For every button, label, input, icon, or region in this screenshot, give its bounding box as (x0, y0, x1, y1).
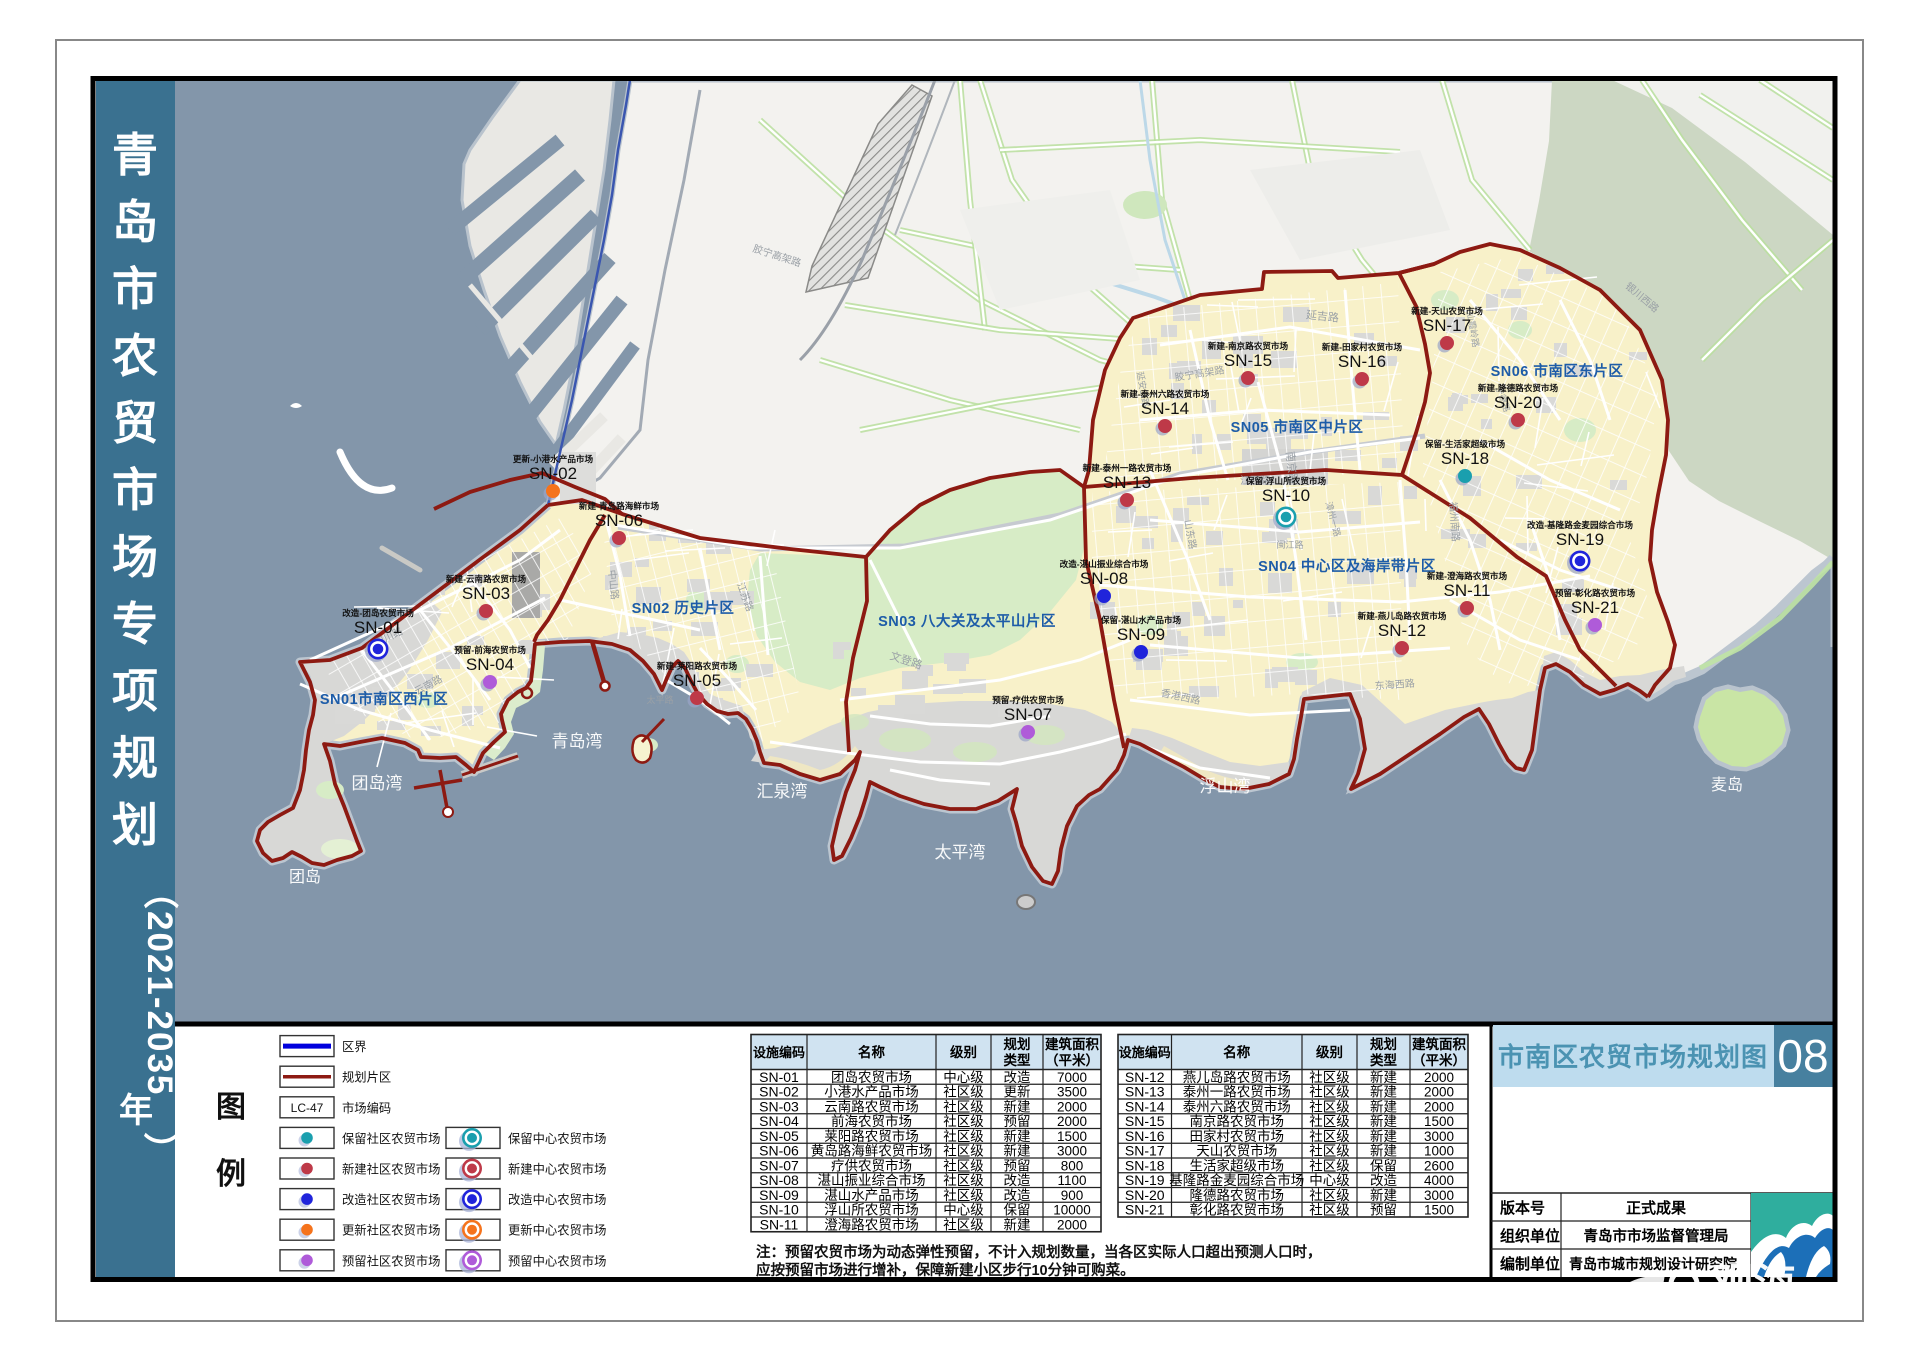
svg-text:中心级: 中心级 (1309, 1173, 1350, 1188)
svg-text:名称: 名称 (858, 1044, 886, 1060)
svg-text:SN-16: SN-16 (1125, 1128, 1165, 1144)
svg-text:麦岛: 麦岛 (1711, 776, 1743, 794)
svg-text:改造-基隆路金麦园综合市场: 改造-基隆路金麦园综合市场 (1527, 519, 1633, 530)
svg-text:泰州一路农贸市场: 泰州一路农贸市场 (1183, 1084, 1291, 1100)
svg-text:7000: 7000 (1057, 1070, 1087, 1085)
svg-text:市: 市 (112, 464, 158, 516)
svg-text:新建: 新建 (1370, 1144, 1397, 1159)
svg-text:SN-21: SN-21 (1125, 1202, 1165, 1218)
svg-text:新建: 新建 (1004, 1099, 1031, 1114)
svg-text:新建-澄海路农贸市场: 新建-澄海路农贸市场 (1427, 570, 1508, 581)
svg-text:3500: 3500 (1057, 1085, 1087, 1100)
svg-text:改造: 改造 (1004, 1173, 1032, 1188)
svg-text:新建: 新建 (1370, 1070, 1397, 1085)
svg-text:SN-10: SN-10 (759, 1202, 799, 1218)
svg-text:）: ） (140, 1132, 179, 1167)
svg-text:SN-15: SN-15 (1224, 351, 1272, 370)
svg-text:名称: 名称 (1223, 1044, 1251, 1060)
svg-text:SN-17: SN-17 (1125, 1143, 1165, 1159)
svg-text:团岛湾: 团岛湾 (352, 774, 403, 793)
svg-text:SN-12: SN-12 (1125, 1069, 1165, 1085)
svg-text:湛山水产品市场: 湛山水产品市场 (824, 1187, 919, 1203)
svg-text:新建-燕儿岛路农贸市场: 新建-燕儿岛路农贸市场 (1358, 610, 1447, 621)
svg-text:SN-06: SN-06 (595, 511, 643, 530)
svg-text:SN-19: SN-19 (1125, 1172, 1165, 1188)
svg-text:SN-16: SN-16 (1338, 352, 1386, 371)
svg-text:SN-01: SN-01 (354, 618, 402, 637)
svg-text:SN-02: SN-02 (529, 464, 577, 483)
svg-text:湛山振业综合市场: 湛山振业综合市场 (818, 1172, 926, 1188)
svg-text:前海农贸市场: 前海农贸市场 (831, 1113, 912, 1129)
svg-text:社区级: 社区级 (1309, 1158, 1350, 1173)
svg-text:新建: 新建 (1004, 1144, 1031, 1159)
svg-text:例: 例 (216, 1158, 246, 1191)
svg-text:类型: 类型 (1370, 1052, 1398, 1068)
svg-text:市场编码: 市场编码 (342, 1100, 391, 1115)
svg-text:SN-11: SN-11 (760, 1216, 799, 1232)
svg-text:黄岛路海鲜农贸市场: 黄岛路海鲜农贸市场 (811, 1143, 933, 1159)
svg-text:新建-隆德路农贸市场: 新建-隆德路农贸市场 (1478, 382, 1559, 393)
svg-text:版本号: 版本号 (1500, 1199, 1545, 1217)
svg-text:社区级: 社区级 (1309, 1144, 1350, 1159)
svg-text:SN-14: SN-14 (1125, 1098, 1165, 1114)
svg-text:田家村农贸市场: 田家村农贸市场 (1190, 1128, 1285, 1144)
svg-text:新建: 新建 (1004, 1129, 1031, 1144)
svg-text:新建-田家村农贸市场: 新建-田家村农贸市场 (1322, 341, 1403, 352)
svg-text:区界: 区界 (342, 1040, 367, 1054)
svg-text:建筑面积: 建筑面积 (1044, 1036, 1099, 1052)
svg-text:图: 图 (216, 1091, 246, 1124)
svg-text:岛: 岛 (112, 196, 158, 248)
svg-text:中心级: 中心级 (943, 1203, 984, 1218)
svg-text:观海: 观海 (1712, 1260, 1796, 1307)
svg-text:预留: 预留 (1370, 1203, 1397, 1218)
svg-text:SN-21: SN-21 (1571, 598, 1619, 617)
svg-text:3000: 3000 (1057, 1144, 1087, 1159)
svg-text:SN-05: SN-05 (673, 671, 721, 690)
svg-text:SN-03: SN-03 (759, 1098, 799, 1114)
svg-text:新建: 新建 (1370, 1114, 1397, 1129)
svg-text:疗供农贸市场: 疗供农贸市场 (831, 1157, 912, 1173)
svg-text:规划: 规划 (1004, 1036, 1031, 1052)
svg-text:太平路: 太平路 (646, 694, 673, 705)
svg-text:新建-云南路农贸市场: 新建-云南路农贸市场 (446, 573, 527, 584)
svg-text:农: 农 (112, 330, 158, 382)
svg-text:（平米）: （平米） (1412, 1052, 1466, 1068)
svg-text:保留-湛山水产品市场: 保留-湛山水产品市场 (1100, 614, 1182, 625)
svg-text:莱阳路农贸市场: 莱阳路农贸市场 (824, 1128, 919, 1144)
svg-text:预留社区农贸市场: 预留社区农贸市场 (342, 1253, 440, 1268)
svg-text:预留-彰化路农贸市场: 预留-彰化路农贸市场 (1555, 587, 1636, 598)
svg-text:青岛市市场监督管理局: 青岛市市场监督管理局 (1584, 1227, 1729, 1245)
svg-text:社区级: 社区级 (1309, 1114, 1350, 1129)
svg-text:SN-09: SN-09 (1117, 625, 1165, 644)
svg-text:更新: 更新 (1004, 1085, 1031, 1100)
svg-text:规: 规 (112, 732, 158, 784)
svg-text:青: 青 (112, 129, 158, 181)
svg-text:设施编码: 设施编码 (753, 1045, 805, 1060)
svg-text:团岛: 团岛 (289, 868, 321, 886)
svg-text:贸: 贸 (112, 397, 158, 449)
svg-text:SN02 历史片区: SN02 历史片区 (632, 599, 735, 617)
svg-text:SN-17: SN-17 (1423, 316, 1471, 335)
svg-text:泰州六路农贸市场: 泰州六路农贸市场 (1183, 1098, 1291, 1114)
svg-text:浮山所农贸市场: 浮山所农贸市场 (824, 1202, 919, 1218)
svg-text:彰化路农贸市场: 彰化路农贸市场 (1190, 1202, 1285, 1218)
svg-text:预留-疗供农贸市场: 预留-疗供农贸市场 (992, 694, 1064, 705)
svg-text:澄海路农贸市场: 澄海路农贸市场 (824, 1216, 919, 1232)
svg-text:预留-前海农贸市场: 预留-前海农贸市场 (454, 644, 526, 655)
svg-text:SN04 中心区及海岸带片区: SN04 中心区及海岸带片区 (1258, 557, 1436, 575)
svg-text:SN-07: SN-07 (1004, 705, 1052, 724)
svg-text:新建: 新建 (1370, 1099, 1397, 1114)
svg-text:云南路农贸市场: 云南路农贸市场 (824, 1098, 919, 1114)
svg-text:900: 900 (1061, 1188, 1084, 1203)
svg-text:社区级: 社区级 (943, 1173, 984, 1188)
svg-text:市南区农贸市场规划图: 市南区农贸市场规划图 (1498, 1042, 1768, 1072)
svg-text:社区级: 社区级 (1309, 1203, 1350, 1218)
svg-text:社区级: 社区级 (1309, 1129, 1350, 1144)
svg-text:社区级: 社区级 (943, 1188, 984, 1203)
svg-text:新建-南京路农贸市场: 新建-南京路农贸市场 (1208, 340, 1289, 351)
svg-text:SN-13: SN-13 (1125, 1084, 1165, 1100)
svg-text:SN-11: SN-11 (1444, 581, 1491, 600)
svg-text:SN-04: SN-04 (759, 1113, 799, 1129)
svg-text:注：预留农贸市场为动态弹性预留，不计入规划数量，当各区实际人: 注：预留农贸市场为动态弹性预留，不计入规划数量，当各区实际人口超出预测人口时， (756, 1243, 1322, 1261)
svg-text:市: 市 (112, 263, 158, 315)
svg-text:南京路农贸市场: 南京路农贸市场 (1190, 1113, 1285, 1129)
svg-text:建筑面积: 建筑面积 (1411, 1036, 1466, 1052)
svg-text:SN-01: SN-01 (759, 1069, 799, 1085)
svg-text:SN-18: SN-18 (1125, 1157, 1165, 1173)
svg-text:级别: 级别 (1316, 1044, 1343, 1060)
svg-text:SN06 市南区东片区: SN06 市南区东片区 (1491, 362, 1624, 380)
svg-text:SN-14: SN-14 (1141, 399, 1189, 418)
svg-text:SN-10: SN-10 (1262, 486, 1310, 505)
svg-text:闽江路: 闽江路 (1276, 539, 1303, 550)
svg-text:太平湾: 太平湾 (935, 843, 986, 862)
svg-text:改造: 改造 (1370, 1173, 1398, 1188)
svg-text:SN-08: SN-08 (759, 1172, 799, 1188)
svg-text:社区级: 社区级 (943, 1158, 984, 1173)
svg-text:正式成果: 正式成果 (1626, 1199, 1687, 1217)
svg-text:SN-20: SN-20 (1125, 1187, 1165, 1203)
svg-text:2000: 2000 (1424, 1099, 1454, 1114)
svg-text:场: 场 (112, 531, 158, 583)
svg-text:保留社区农贸市场: 保留社区农贸市场 (342, 1131, 440, 1146)
svg-text:800: 800 (1061, 1158, 1084, 1173)
svg-text:小港水产品市场: 小港水产品市场 (824, 1084, 919, 1100)
svg-text:LC-47: LC-47 (291, 1101, 324, 1115)
svg-text:2000: 2000 (1424, 1070, 1454, 1085)
svg-text:社区级: 社区级 (943, 1114, 984, 1129)
svg-text:保留-生活家超级市场: 保留-生活家超级市场 (1424, 438, 1506, 449)
svg-text:SN-06: SN-06 (759, 1143, 799, 1159)
svg-text:4000: 4000 (1424, 1173, 1454, 1188)
svg-text:天山农贸市场: 天山农贸市场 (1196, 1143, 1277, 1159)
svg-text:改造中心农贸市场: 改造中心农贸市场 (508, 1192, 606, 1207)
svg-text:社区级: 社区级 (943, 1217, 984, 1232)
svg-text:改造: 改造 (1004, 1070, 1032, 1085)
svg-text:浮山湾: 浮山湾 (1200, 777, 1251, 796)
svg-text:预留: 预留 (1004, 1114, 1031, 1129)
svg-text:基隆路金麦园综合市场: 基隆路金麦园综合市场 (1169, 1172, 1304, 1188)
svg-text:SN-04: SN-04 (466, 655, 514, 674)
svg-text:专: 专 (112, 598, 158, 650)
svg-text:改造社区农贸市场: 改造社区农贸市场 (342, 1192, 440, 1207)
svg-text:社区级: 社区级 (1309, 1188, 1350, 1203)
svg-text:1100: 1100 (1057, 1173, 1086, 1188)
svg-text:3000: 3000 (1424, 1129, 1454, 1144)
svg-text:SN-09: SN-09 (759, 1187, 799, 1203)
svg-text:保留-浮山所农贸市场: 保留-浮山所农贸市场 (1245, 475, 1327, 486)
svg-text:更新社区农贸市场: 更新社区农贸市场 (342, 1223, 440, 1238)
svg-text:中心级: 中心级 (943, 1070, 984, 1085)
svg-text:08: 08 (1777, 1030, 1828, 1082)
svg-text:社区级: 社区级 (943, 1144, 984, 1159)
svg-text:改造-团岛农贸市场: 改造-团岛农贸市场 (342, 607, 414, 618)
svg-text:1500: 1500 (1057, 1129, 1087, 1144)
svg-text:SN01市南区西片区: SN01市南区西片区 (320, 690, 448, 708)
svg-text:编制单位: 编制单位 (1500, 1255, 1560, 1273)
svg-text:预留: 预留 (1004, 1158, 1031, 1173)
svg-text:更新中心农贸市场: 更新中心农贸市场 (508, 1223, 606, 1238)
svg-text:新建-泰州一路农贸市场: 新建-泰州一路农贸市场 (1083, 462, 1172, 473)
svg-text:保留: 保留 (1370, 1158, 1397, 1173)
svg-text:新建-青岛路海鲜市场: 新建-青岛路海鲜市场 (579, 500, 660, 511)
svg-text:新建-泰州六路农贸市场: 新建-泰州六路农贸市场 (1121, 388, 1210, 399)
svg-text:SN-18: SN-18 (1441, 449, 1489, 468)
svg-text:应按预留市场进行增补，保障新建小区步行10分钟可购菜。: 应按预留市场进行增补，保障新建小区步行10分钟可购菜。 (756, 1261, 1135, 1279)
svg-text:改造-湛山振业综合市场: 改造-湛山振业综合市场 (1060, 558, 1149, 569)
svg-text:SN-08: SN-08 (1080, 569, 1128, 588)
svg-text:新建-天山农贸市场: 新建-天山农贸市场 (1411, 305, 1483, 316)
svg-text:（平米）: （平米） (1045, 1052, 1099, 1068)
svg-text:保留: 保留 (1004, 1203, 1031, 1218)
svg-text:预留中心农贸市场: 预留中心农贸市场 (508, 1253, 606, 1268)
svg-text:燕儿岛路农贸市场: 燕儿岛路农贸市场 (1183, 1069, 1291, 1085)
svg-text:规划片区: 规划片区 (342, 1070, 391, 1085)
svg-text:规划: 规划 (1370, 1036, 1397, 1052)
svg-text:3000: 3000 (1424, 1188, 1454, 1203)
svg-text:1500: 1500 (1424, 1203, 1454, 1218)
svg-text:SN05 市南区中片区: SN05 市南区中片区 (1231, 418, 1364, 436)
svg-text:2000: 2000 (1424, 1085, 1454, 1100)
svg-text:SN-07: SN-07 (759, 1157, 799, 1173)
svg-text:2600: 2600 (1424, 1158, 1454, 1173)
svg-text:汇泉湾: 汇泉湾 (757, 782, 808, 801)
svg-text:青岛湾: 青岛湾 (552, 732, 603, 751)
svg-text:社区级: 社区级 (1309, 1099, 1350, 1114)
svg-text:社区级: 社区级 (943, 1099, 984, 1114)
svg-text:社区级: 社区级 (943, 1129, 984, 1144)
svg-text:划: 划 (112, 799, 158, 851)
svg-text:SN-05: SN-05 (759, 1128, 799, 1144)
svg-text:生活家超级市场: 生活家超级市场 (1190, 1157, 1285, 1173)
svg-text:SN-12: SN-12 (1378, 621, 1426, 640)
svg-text:（2021-2035: （2021-2035 (140, 874, 179, 1096)
svg-text:新建社区农贸市场: 新建社区农贸市场 (342, 1162, 440, 1177)
svg-text:改造: 改造 (1004, 1188, 1032, 1203)
svg-text:新建: 新建 (1004, 1217, 1031, 1232)
svg-text:类型: 类型 (1004, 1052, 1032, 1068)
svg-text:SN-02: SN-02 (759, 1084, 799, 1100)
svg-text:SN-13: SN-13 (1103, 473, 1151, 492)
svg-text:2000: 2000 (1057, 1099, 1087, 1114)
svg-text:SN-19: SN-19 (1556, 530, 1604, 549)
svg-text:社区级: 社区级 (1309, 1085, 1350, 1100)
svg-text:新建: 新建 (1370, 1188, 1397, 1203)
svg-text:更新-小港水产品市场: 更新-小港水产品市场 (513, 453, 594, 464)
svg-text:设施编码: 设施编码 (1119, 1045, 1171, 1060)
svg-text:新建中心农贸市场: 新建中心农贸市场 (508, 1162, 606, 1177)
svg-text:保留中心农贸市场: 保留中心农贸市场 (508, 1131, 606, 1146)
svg-text:1000: 1000 (1424, 1144, 1454, 1159)
svg-text:新建-莱阳路农贸市场: 新建-莱阳路农贸市场 (657, 660, 738, 671)
svg-text:2000: 2000 (1057, 1114, 1087, 1129)
svg-text:SN-15: SN-15 (1125, 1113, 1165, 1129)
svg-text:SN-20: SN-20 (1494, 393, 1542, 412)
svg-text:团岛农贸市场: 团岛农贸市场 (831, 1069, 912, 1085)
svg-text:1500: 1500 (1424, 1114, 1454, 1129)
svg-text:组织单位: 组织单位 (1500, 1227, 1560, 1245)
svg-text:隆德路农贸市场: 隆德路农贸市场 (1190, 1187, 1285, 1203)
svg-text:SN03 八大关及太平山片区: SN03 八大关及太平山片区 (878, 612, 1056, 630)
svg-text:2000: 2000 (1057, 1217, 1087, 1232)
svg-text:年: 年 (119, 1092, 153, 1130)
svg-text:社区级: 社区级 (943, 1085, 984, 1100)
svg-text:级别: 级别 (950, 1044, 977, 1060)
svg-text:新建: 新建 (1370, 1129, 1397, 1144)
svg-text:项: 项 (112, 665, 158, 717)
svg-text:社区级: 社区级 (1309, 1070, 1350, 1085)
svg-text:新建: 新建 (1370, 1085, 1397, 1100)
svg-text:10000: 10000 (1053, 1203, 1091, 1218)
svg-text:SN-03: SN-03 (462, 584, 510, 603)
